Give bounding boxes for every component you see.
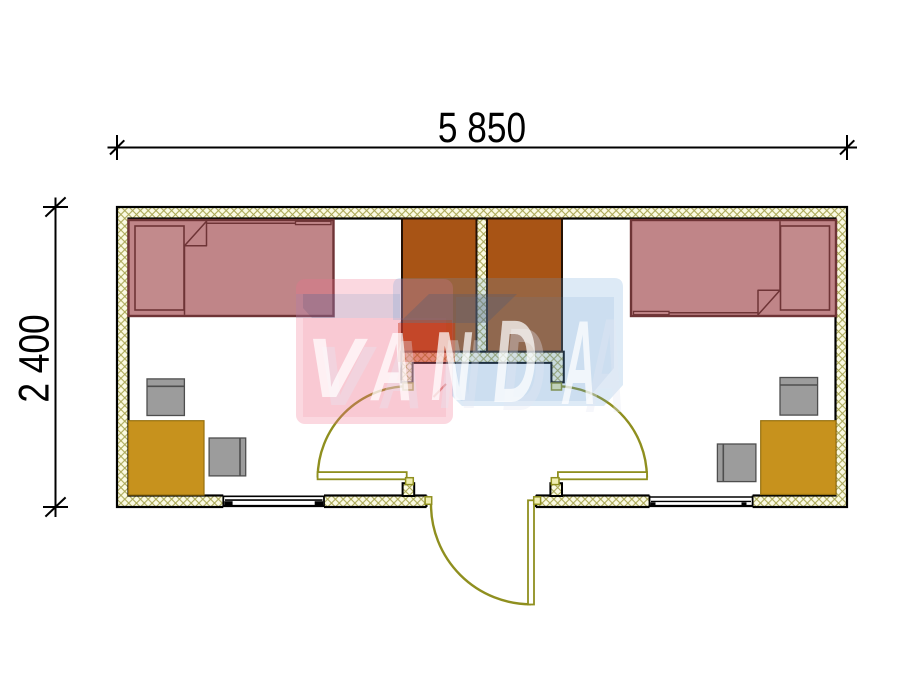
- svg-text:V: V: [306, 321, 368, 415]
- svg-text:A: A: [562, 297, 597, 430]
- svg-text:D: D: [493, 295, 536, 427]
- svg-text:A: A: [370, 313, 413, 421]
- svg-text:N: N: [431, 312, 472, 421]
- svg-text:2 400: 2 400: [10, 314, 58, 402]
- svg-text:5 850: 5 850: [438, 104, 526, 152]
